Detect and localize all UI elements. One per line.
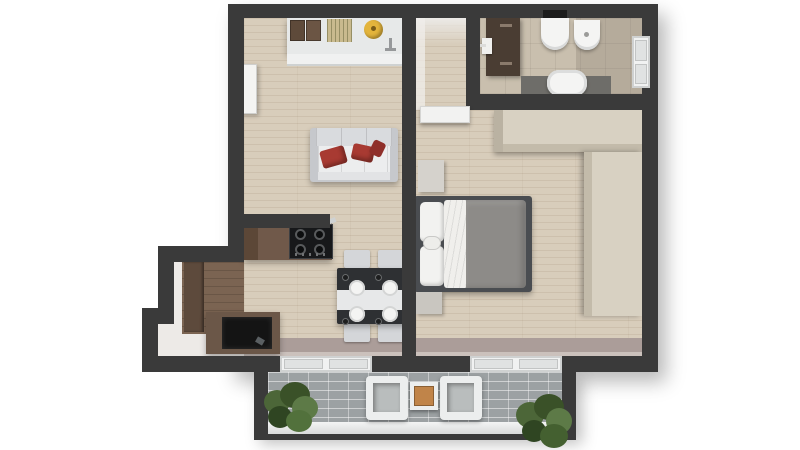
window-pane (329, 359, 368, 369)
plant-left (262, 382, 320, 434)
bidet-drain (584, 32, 589, 37)
tv-screen (222, 317, 272, 349)
floor-plan (0, 0, 800, 450)
wall-bottom (142, 356, 658, 372)
window-pane (474, 359, 513, 369)
plate (382, 280, 398, 296)
niche-wood-column (184, 262, 204, 332)
dining-chair (344, 250, 370, 268)
hallway-left-face (416, 18, 425, 110)
wardrobe-right-front-edge (584, 152, 592, 316)
window-pane (635, 40, 647, 61)
table-runner (337, 290, 409, 310)
balcony-chair-right-seat (447, 383, 474, 412)
bed-duvet (466, 200, 526, 288)
leaf (286, 410, 312, 432)
burner (295, 229, 306, 240)
plate (349, 306, 365, 322)
window-pane (284, 359, 323, 369)
bed-pillow (420, 246, 444, 286)
plate (349, 280, 365, 296)
cooktop-knobs (295, 253, 327, 256)
kitchen-faucet-base (385, 48, 396, 51)
toilet-flush-plate (543, 10, 567, 18)
burner (314, 229, 325, 240)
wall-divider-living-bedroom (402, 18, 416, 358)
window-pane (519, 359, 558, 369)
cutting-board-2 (306, 20, 321, 41)
balcony-table-top (414, 386, 434, 406)
bathroom-door-tick (500, 24, 512, 27)
hallway-bedroom-door (420, 106, 470, 123)
dining-chair (378, 250, 404, 268)
wardrobe-top-left-face (494, 110, 503, 152)
wall-niche-step-4 (142, 308, 158, 372)
balcony-chair-left-seat (373, 383, 400, 412)
glass (375, 318, 382, 325)
leaf (540, 424, 568, 448)
wall-top (228, 4, 658, 18)
glass (375, 274, 382, 281)
toilet (541, 18, 569, 50)
bed-sheet (444, 200, 468, 288)
wall-bathroom-bottom (466, 94, 658, 110)
ottoman (416, 292, 442, 314)
wall-stove-stub (244, 214, 330, 228)
dining-chair (378, 324, 404, 342)
kitchen-counter-ledge (287, 54, 402, 66)
bathroom-window (632, 36, 650, 88)
sofa-front-lip (318, 172, 390, 180)
wardrobe-right-run (584, 152, 642, 316)
bed-pillow-roll (423, 236, 441, 250)
bathroom-door-tick (500, 62, 512, 65)
glass (342, 318, 349, 325)
dining-chair (344, 324, 370, 342)
cutting-board (290, 20, 305, 41)
kitchen-mat (327, 19, 352, 42)
glass (342, 274, 349, 281)
stand-mixer-knob (371, 26, 376, 31)
wall-left (228, 4, 244, 262)
window-pane (635, 64, 647, 84)
plate (382, 306, 398, 322)
plant-right (512, 392, 574, 450)
bedroom-balcony-window (470, 356, 562, 372)
living-balcony-window (280, 356, 372, 372)
bathtub (547, 70, 587, 96)
nightstand (418, 160, 444, 192)
wardrobe-top-front-edge (494, 144, 642, 152)
